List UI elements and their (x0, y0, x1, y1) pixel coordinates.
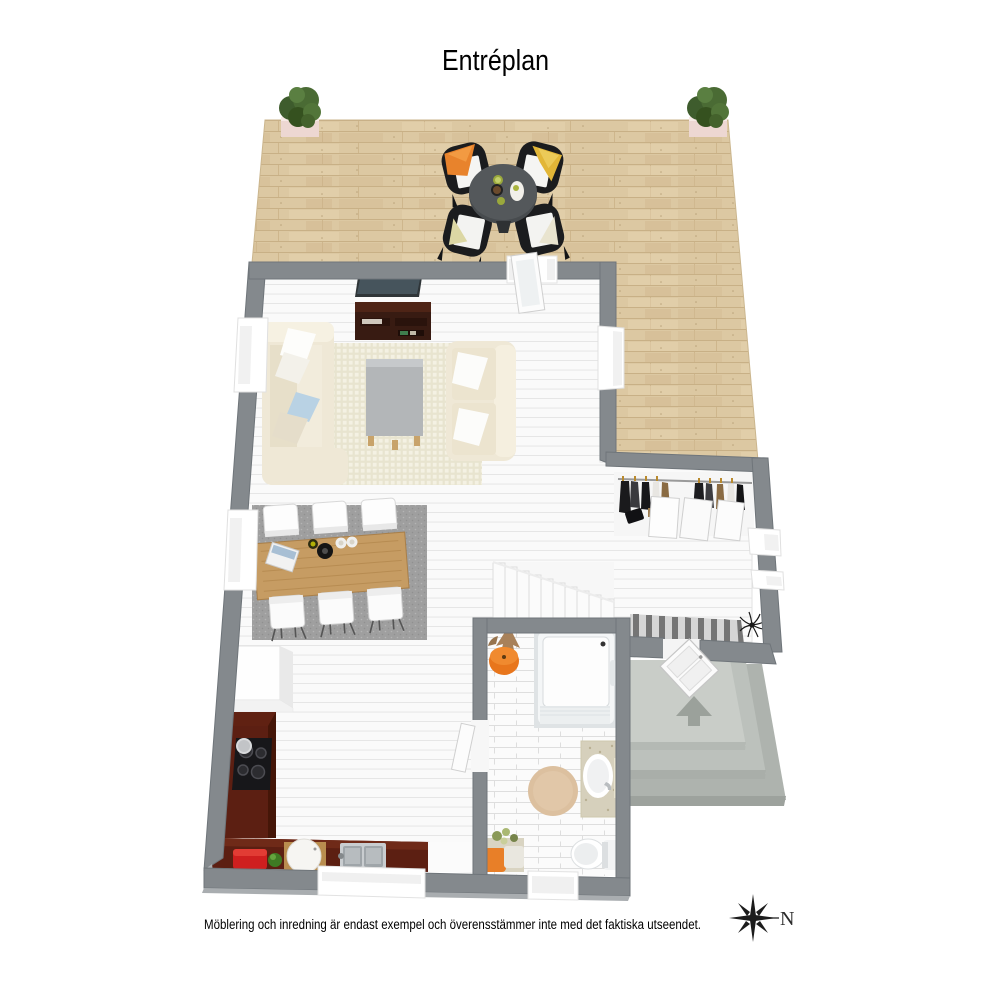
svg-text:Möblering och inredning är end: Möblering och inredning är endast exempe… (204, 917, 701, 932)
svg-text:N: N (780, 908, 794, 930)
svg-text:Entréplan: Entréplan (442, 45, 549, 77)
